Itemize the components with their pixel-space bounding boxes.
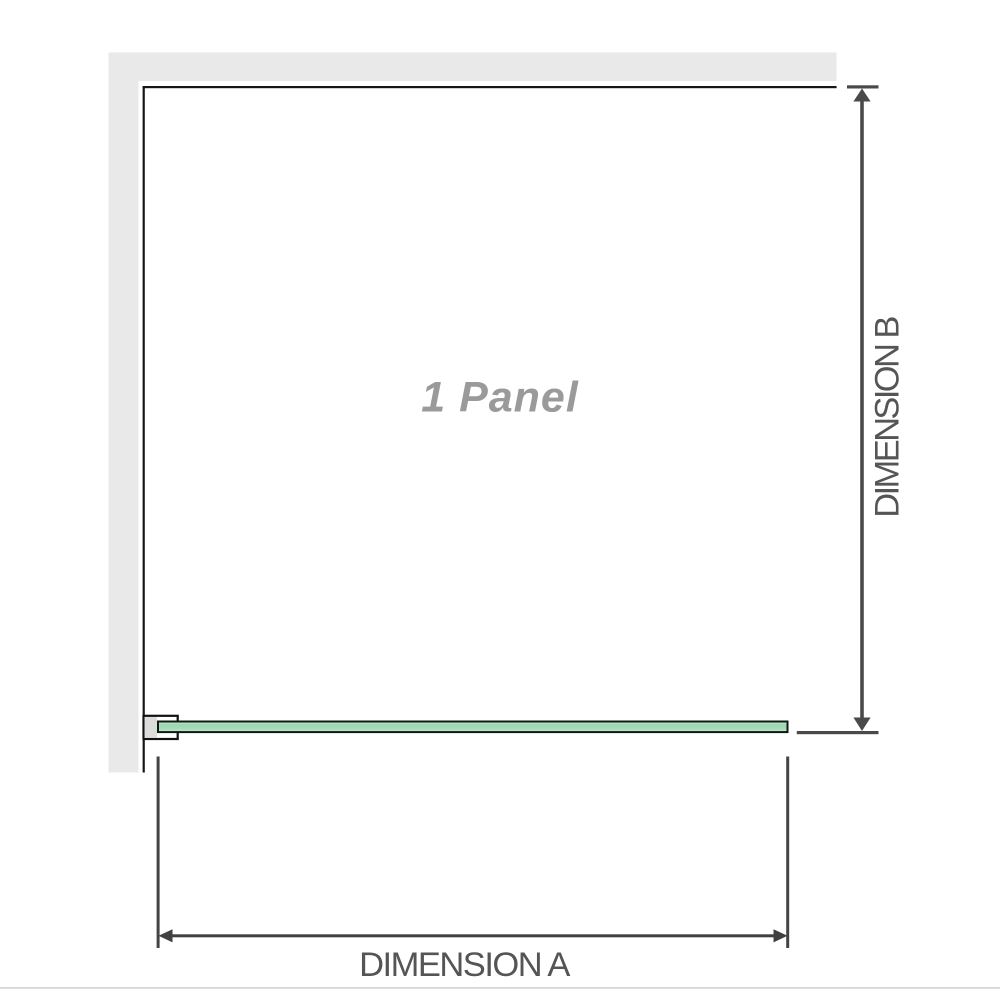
svg-text:DIMENSION A: DIMENSION A — [359, 946, 570, 984]
svg-text:DIMENSION B: DIMENSION B — [869, 317, 907, 518]
svg-text:1 Panel: 1 Panel — [421, 374, 579, 422]
